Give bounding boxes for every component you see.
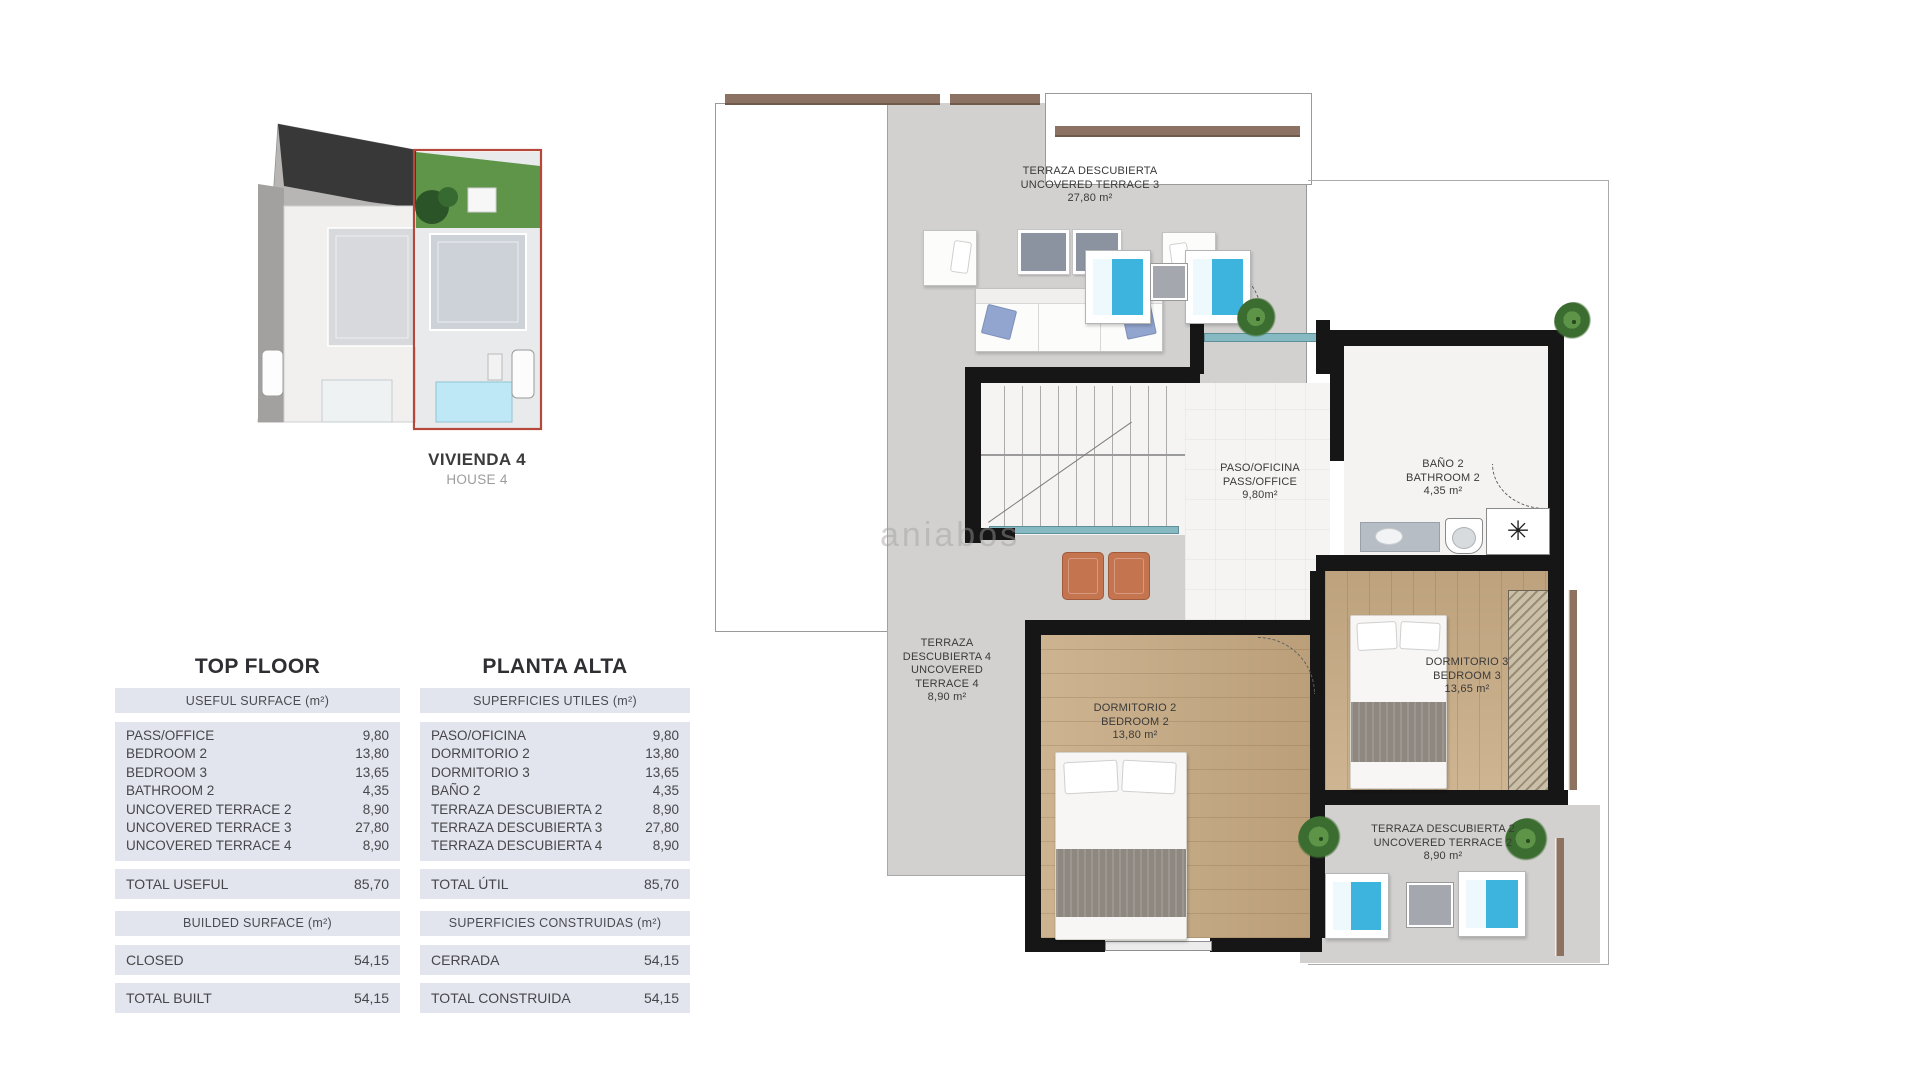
bedroom3-label: DORMITORIO 3 BEDROOM 3 13,65 m² (1426, 656, 1509, 697)
pergola-beam (950, 94, 1040, 105)
terrace3-label: TERRAZA DESCUBIERTA UNCOVERED TERRACE 3 … (1021, 165, 1160, 206)
shower-icon (1486, 508, 1550, 555)
table-title-es: PLANTA ALTA (420, 655, 690, 679)
pool (436, 382, 512, 422)
table-row: DORMITORIO 313,65 (420, 764, 690, 782)
table-row: BATHROOM 24,35 (115, 782, 400, 800)
stairs-floor (981, 383, 1185, 535)
table-row: TERRAZA DESCUBIERTA 28,90 (420, 801, 690, 819)
table-row: UNCOVERED TERRACE 327,80 (115, 819, 400, 837)
useful-surface-rows: PASS/OFFICE9,80 BEDROOM 213,80 BEDROOM 3… (115, 722, 400, 861)
table-row: UNCOVERED TERRACE 28,90 (115, 801, 400, 819)
table-row: UNCOVERED TERRACE 48,90 (115, 837, 400, 855)
brochure-page: VIVIENDA 4 HOUSE 4 TOP FLOOR USEFUL SURF… (0, 0, 1920, 1080)
total-util-row: TOTAL ÚTIL85,70 (420, 869, 690, 899)
pergola-beam (725, 94, 940, 105)
car-icon (512, 350, 534, 398)
side-table (1407, 883, 1453, 927)
bathroom2-label: BAÑO 2 BATHROOM 2 4,35 m² (1406, 458, 1480, 499)
pergola-beam (1055, 126, 1300, 137)
total-useful-row: TOTAL USEFUL85,70 (115, 869, 400, 899)
wall (1025, 938, 1105, 952)
bed-bedroom2 (1055, 752, 1187, 940)
terrace2-label: TERRAZA DESCUBIERTA 2 UNCOVERED TERRACE … (1371, 823, 1515, 864)
bedroom2-label: DORMITORIO 2 BEDROOM 2 13,80 m² (1094, 702, 1177, 743)
sofa-pillow (981, 304, 1017, 340)
car-icon (262, 350, 283, 396)
terrace4-label: TERRAZA DESCUBIERTA 4 UNCOVERED TERRACE … (903, 637, 991, 705)
closed-row: CLOSED54,15 (115, 945, 400, 975)
house4-thumbnail (414, 150, 541, 429)
site-plan-thumbnail (250, 110, 545, 445)
wall (1316, 320, 1330, 374)
wall-art (1018, 230, 1069, 274)
toilet-icon (1445, 518, 1483, 554)
neighbour-house (258, 124, 416, 422)
pass-office-label: PASO/OFICINA PASS/OFFICE 9,80m² (1220, 462, 1300, 503)
builded-surface-header: BUILDED SURFACE (m²) (115, 911, 400, 936)
cerrada-row: CERRADA54,15 (420, 945, 690, 975)
house-subtitle: HOUSE 4 (428, 472, 526, 487)
table-row: BAÑO 24,35 (420, 782, 690, 800)
wall (1210, 938, 1322, 952)
superficies-construidas-header: SUPERFICIES CONSTRUIDAS (m²) (420, 911, 690, 936)
side-table (1151, 264, 1187, 300)
house-label: VIVIENDA 4 HOUSE 4 (428, 450, 526, 487)
floor-plan: TERRAZA DESCUBIERTA UNCOVERED TERRACE 3 … (710, 90, 1615, 1020)
superficies-utiles-header: SUPERFICIES UTILES (m²) (420, 688, 690, 713)
wardrobe (1508, 590, 1550, 792)
table-row: TERRAZA DESCUBIERTA 327,80 (420, 819, 690, 837)
table-title-en: TOP FLOOR (115, 655, 400, 679)
bed-bedroom3 (1350, 615, 1447, 789)
table-row: BEDROOM 213,80 (115, 745, 400, 763)
deck-rail (1555, 838, 1564, 956)
wall (1025, 635, 1041, 950)
table-row: BEDROOM 313,65 (115, 764, 400, 782)
terrace-chair (1062, 552, 1104, 600)
wall (1190, 320, 1204, 374)
stair-treads (987, 386, 1179, 532)
armchair (923, 230, 977, 286)
wall (1330, 330, 1564, 346)
terrace-chair (1108, 552, 1150, 600)
deck-rail (1568, 590, 1577, 790)
vanity-sink (1360, 522, 1440, 552)
wall (1310, 571, 1325, 938)
wall (1548, 346, 1564, 805)
watermark: aniabos (880, 516, 1020, 555)
sun-lounger (1325, 873, 1389, 939)
sun-lounger (1085, 250, 1151, 324)
sliding-door (1105, 941, 1212, 951)
wall (1310, 790, 1568, 805)
house-title: VIVIENDA 4 (428, 450, 526, 470)
table-row: TERRAZA DESCUBIERTA 48,90 (420, 837, 690, 855)
total-construida-row: TOTAL CONSTRUIDA54,15 (420, 983, 690, 1013)
plant-icon (1298, 816, 1344, 862)
useful-surface-header: USEFUL SURFACE (m²) (115, 688, 400, 713)
plant-icon (1237, 298, 1279, 340)
table-top-floor: TOP FLOOR USEFUL SURFACE (m²) PASS/OFFIC… (115, 655, 400, 1013)
plant-icon (1554, 302, 1594, 342)
table-planta-alta: PLANTA ALTA SUPERFICIES UTILES (m²) PASO… (420, 655, 690, 1013)
wall (965, 367, 1200, 383)
table-row: DORMITORIO 213,80 (420, 745, 690, 763)
superficies-utiles-rows: PASO/OFICINA9,80 DORMITORIO 213,80 DORMI… (420, 722, 690, 861)
wall (1330, 346, 1344, 461)
table-row: PASS/OFFICE9,80 (115, 727, 400, 745)
total-built-row: TOTAL BUILT54,15 (115, 983, 400, 1013)
wall (1316, 555, 1564, 571)
table-row: PASO/OFICINA9,80 (420, 727, 690, 745)
sun-lounger (1458, 871, 1526, 937)
wall (1025, 620, 1315, 635)
